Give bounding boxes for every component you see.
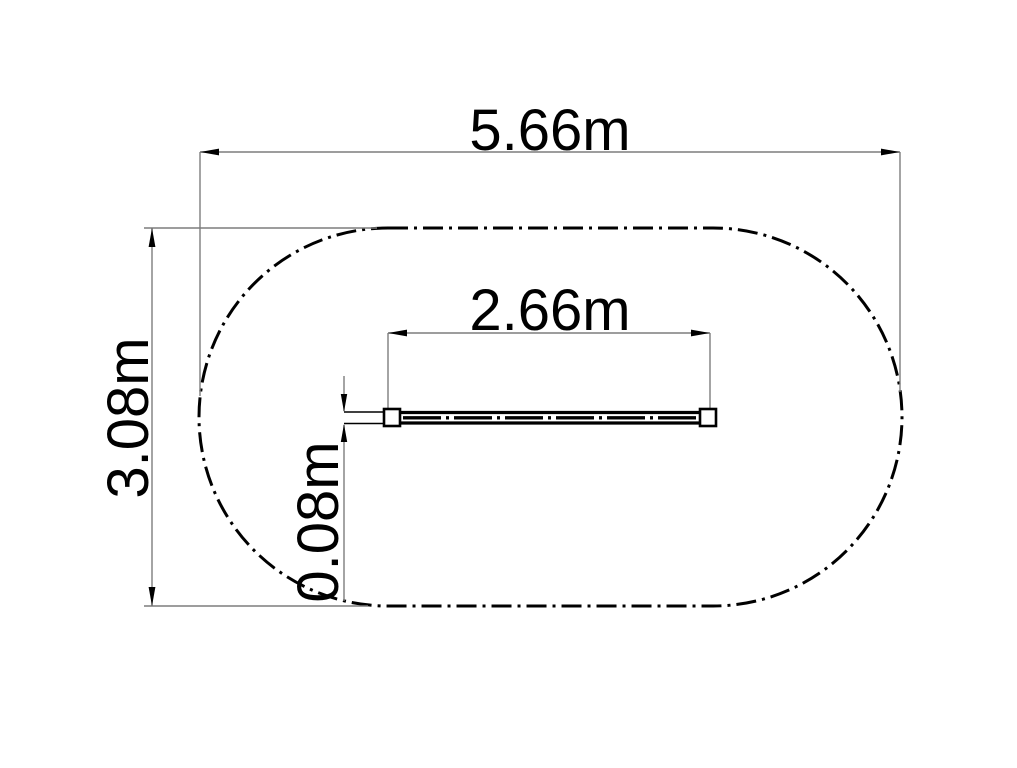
arrow-up-icon: [149, 228, 156, 247]
arrow-right-icon: [881, 149, 900, 156]
dimension-arrowheads: [149, 149, 900, 606]
beam-left-post: [384, 409, 400, 426]
drawing-sheet: 5.66m 2.66m 3.08m 0.08m: [0, 0, 1017, 768]
arrow-down-icon: [149, 587, 156, 606]
beam-right-post: [700, 409, 716, 426]
balance-beam: [344, 409, 716, 426]
dimension-label-equipment-thickness: 0.08m: [286, 441, 351, 602]
arrow-left-icon: [388, 330, 407, 337]
arrow-right-icon: [691, 330, 710, 337]
dimension-label-overall-height: 3.08m: [96, 337, 161, 498]
arrow-down-icon: [341, 394, 347, 412]
dimension-label-equipment-length: 2.66m: [469, 278, 630, 343]
plan-drawing: 5.66m 2.66m 3.08m 0.08m: [0, 0, 1017, 768]
dimension-label-overall-width: 5.66m: [469, 98, 630, 163]
arrow-left-icon: [200, 149, 219, 156]
construction-lines: [144, 152, 900, 606]
arrow-up-icon: [341, 424, 347, 442]
